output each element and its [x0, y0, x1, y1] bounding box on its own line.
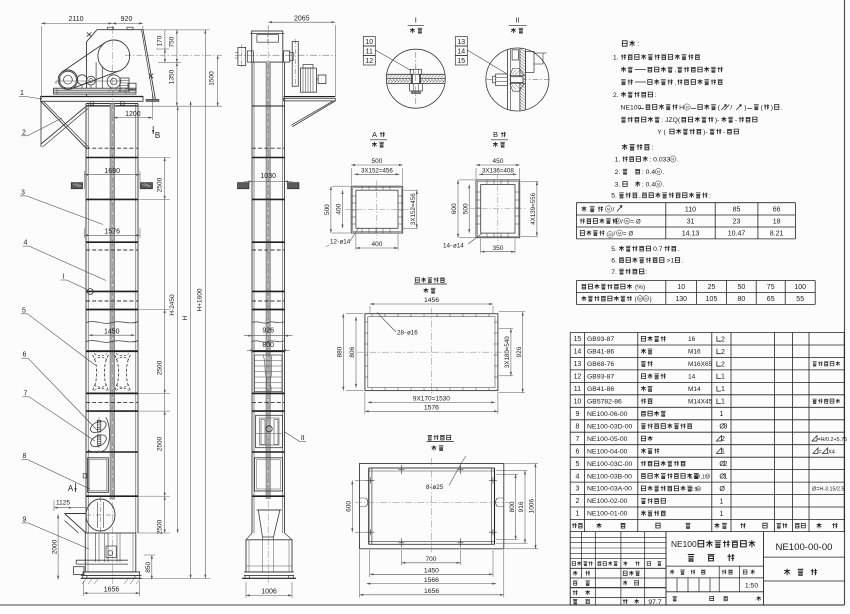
- svg-text:B: B: [155, 131, 160, 140]
- svg-text:,1: ,1: [701, 475, 706, 481]
- svg-text:65: 65: [767, 296, 775, 303]
- svg-text:80: 80: [738, 296, 746, 303]
- svg-text:55: 55: [796, 296, 804, 303]
- svg-text:450: 450: [492, 158, 503, 165]
- svg-text:2500: 2500: [156, 360, 163, 375]
- svg-text:.: .: [678, 246, 680, 253]
- svg-text:2: 2: [721, 436, 725, 443]
- svg-text:.: .: [781, 105, 783, 112]
- svg-text:16: 16: [688, 336, 696, 343]
- svg-text:II: II: [301, 435, 305, 442]
- svg-text:920: 920: [121, 16, 133, 23]
- svg-text:NE100-03D-00: NE100-03D-00: [587, 423, 633, 430]
- svg-text:31: 31: [687, 218, 695, 225]
- svg-text:12: 12: [574, 374, 582, 381]
- svg-text:1.: 1.: [613, 55, 619, 62]
- svg-text:7.: 7.: [611, 269, 617, 276]
- svg-text:5: 5: [575, 461, 579, 468]
- svg-text:M: M: [616, 219, 619, 223]
- svg-text:2000: 2000: [51, 539, 58, 554]
- svg-text:9X170=1530: 9X170=1530: [413, 396, 450, 403]
- svg-text:8-: 8-: [426, 484, 432, 491]
- svg-text:NE100-03C-00: NE100-03C-00: [587, 461, 633, 468]
- svg-text:Ø=H-3.15/2.5: Ø=H-3.15/2.5: [812, 487, 845, 493]
- svg-text:.: .: [677, 157, 679, 164]
- svg-text:800: 800: [509, 501, 516, 512]
- svg-text:1350: 1350: [168, 69, 175, 84]
- svg-text:): ): [650, 296, 652, 303]
- svg-text:50: 50: [738, 284, 746, 291]
- svg-text:926: 926: [516, 346, 523, 357]
- svg-text:1450: 1450: [104, 328, 120, 335]
- svg-text:1: 1: [721, 399, 725, 406]
- svg-text:1125: 1125: [56, 500, 70, 507]
- svg-text:GB5782-86: GB5782-86: [587, 399, 622, 406]
- svg-text:14: 14: [457, 49, 465, 56]
- svg-text:500: 500: [324, 204, 331, 215]
- svg-text:M: M: [696, 475, 699, 479]
- svg-text:1.: 1.: [615, 157, 621, 164]
- svg-text:4: 4: [24, 240, 28, 247]
- svg-text:1576: 1576: [104, 229, 120, 236]
- svg-text:2500: 2500: [156, 177, 163, 192]
- svg-text:14-: 14-: [443, 243, 452, 250]
- svg-text:II: II: [515, 16, 519, 25]
- svg-text:=: =: [623, 232, 627, 238]
- svg-text:1450: 1450: [424, 568, 439, 575]
- svg-text:=: =: [819, 449, 822, 455]
- svg-text:9: 9: [575, 411, 579, 418]
- svg-text:4X139=556: 4X139=556: [530, 192, 537, 224]
- svg-text:1576: 1576: [424, 405, 439, 412]
- svg-text:11: 11: [574, 386, 581, 393]
- svg-text:H: H: [182, 315, 189, 320]
- svg-text:,: ,: [674, 80, 676, 87]
- svg-text:1500: 1500: [209, 71, 216, 86]
- svg-text:10: 10: [365, 39, 373, 46]
- svg-text:Ø: Ø: [629, 232, 634, 238]
- svg-text:M: M: [626, 219, 629, 223]
- svg-text:B: B: [493, 130, 498, 139]
- svg-text:1200: 1200: [125, 111, 141, 118]
- svg-text:M: M: [657, 170, 660, 174]
- svg-text:3: 3: [723, 424, 727, 431]
- svg-text:13: 13: [574, 361, 582, 368]
- svg-text::: :: [637, 41, 639, 48]
- svg-text:2500: 2500: [156, 436, 163, 451]
- svg-text:130: 130: [675, 296, 687, 303]
- svg-text:8: 8: [575, 423, 579, 430]
- svg-text:): ): [744, 105, 746, 112]
- svg-text:5.: 5.: [611, 193, 617, 200]
- svg-text:NE100-05-00: NE100-05-00: [587, 436, 628, 443]
- svg-text:14.13: 14.13: [682, 230, 700, 237]
- svg-text:3X152=456: 3X152=456: [361, 168, 393, 175]
- svg-text:Ø: Ø: [636, 220, 641, 226]
- svg-text:3: 3: [575, 486, 579, 493]
- svg-text:1: 1: [723, 474, 727, 481]
- svg-text:3.: 3.: [615, 182, 621, 189]
- svg-text:I: I: [63, 274, 65, 281]
- svg-text:.: .: [662, 182, 664, 189]
- svg-text:1: 1: [719, 498, 723, 505]
- svg-text:916: 916: [518, 501, 525, 512]
- svg-text:2: 2: [723, 461, 727, 468]
- svg-text:4: 4: [575, 473, 579, 480]
- svg-text:H: H: [679, 105, 684, 112]
- svg-text:100: 100: [794, 284, 806, 291]
- svg-text:750: 750: [168, 36, 175, 47]
- svg-text:=H/0.2+5.75: =H/0.2+5.75: [818, 437, 848, 443]
- svg-text:7: 7: [24, 390, 28, 397]
- svg-text:926: 926: [262, 327, 274, 334]
- svg-text:500: 500: [371, 158, 382, 165]
- svg-text:6.: 6.: [611, 258, 617, 265]
- svg-text:2: 2: [22, 129, 26, 136]
- svg-text:1656: 1656: [104, 586, 120, 593]
- svg-text:NE100-00-00: NE100-00-00: [775, 542, 832, 553]
- svg-text:GB68-76: GB68-76: [587, 361, 614, 368]
- svg-text:>1: >1: [667, 258, 675, 265]
- svg-text:,: ,: [639, 193, 641, 200]
- svg-text:110: 110: [685, 206, 696, 213]
- svg-text:97.7: 97.7: [648, 599, 661, 606]
- svg-text:11: 11: [366, 49, 373, 56]
- svg-text::: :: [646, 269, 648, 276]
- svg-text:12-: 12-: [330, 239, 339, 246]
- svg-text:6: 6: [23, 352, 27, 359]
- svg-text:Y (: Y (: [657, 129, 666, 136]
- svg-text:2: 2: [721, 349, 725, 356]
- svg-text:13: 13: [457, 39, 465, 46]
- svg-text:M: M: [657, 182, 660, 186]
- svg-text:2: 2: [721, 336, 725, 343]
- svg-text:1: 1: [721, 374, 725, 381]
- svg-text:ø14: ø14: [340, 239, 351, 246]
- svg-text:1456: 1456: [424, 297, 439, 304]
- svg-text:M: M: [618, 231, 621, 235]
- svg-text:700: 700: [425, 556, 436, 563]
- svg-text:5: 5: [22, 307, 26, 314]
- svg-text:GB41-86: GB41-86: [587, 349, 614, 356]
- svg-text:.: .: [662, 169, 664, 176]
- svg-text:/: /: [613, 207, 615, 214]
- svg-text:(%): (%): [635, 284, 645, 291]
- svg-text:2065: 2065: [294, 15, 310, 22]
- svg-text:H+1600: H+1600: [197, 288, 204, 311]
- svg-text:400: 400: [336, 203, 343, 214]
- svg-text:10: 10: [677, 284, 685, 291]
- svg-text:1006: 1006: [261, 589, 277, 596]
- svg-text:M: M: [645, 297, 648, 301]
- svg-text:850: 850: [145, 561, 152, 572]
- svg-text:GB41-86: GB41-86: [587, 386, 614, 393]
- svg-text:1: 1: [575, 511, 579, 518]
- svg-text:NE100-02-00: NE100-02-00: [587, 498, 628, 505]
- svg-text:18: 18: [773, 218, 781, 225]
- svg-text:3X152=456: 3X152=456: [410, 193, 417, 225]
- svg-text:ø25: ø25: [433, 484, 444, 491]
- svg-text:85: 85: [733, 206, 741, 213]
- svg-text::: :: [652, 145, 654, 152]
- svg-text:400: 400: [371, 241, 382, 248]
- svg-text:5.: 5.: [611, 246, 617, 253]
- svg-text:2: 2: [575, 498, 579, 505]
- svg-text:2110: 2110: [68, 16, 83, 23]
- svg-text:NE100: NE100: [671, 539, 697, 549]
- svg-text:A: A: [372, 130, 377, 139]
- svg-text:3: 3: [21, 189, 25, 196]
- svg-text:8.21: 8.21: [770, 230, 784, 237]
- svg-text:M: M: [639, 297, 642, 301]
- svg-text:M: M: [706, 475, 709, 479]
- svg-text:600: 600: [346, 501, 353, 512]
- svg-text:ø14: ø14: [453, 243, 464, 250]
- svg-text:)-: )-: [715, 117, 720, 124]
- svg-text::: :: [709, 193, 711, 200]
- svg-text:NE100-01-00: NE100-01-00: [587, 511, 628, 518]
- svg-text:NE100-06-00: NE100-06-00: [587, 411, 628, 418]
- svg-text:1030: 1030: [260, 173, 276, 180]
- svg-text:,: ,: [674, 67, 676, 74]
- svg-text:M16: M16: [688, 349, 701, 356]
- svg-text:/: /: [730, 105, 732, 112]
- svg-text:.: .: [682, 258, 684, 265]
- svg-text:GB93-87: GB93-87: [587, 336, 614, 343]
- svg-text:ø16: ø16: [407, 330, 418, 337]
- svg-text:: 0.033: : 0.033: [649, 157, 670, 164]
- svg-text:6: 6: [575, 448, 579, 455]
- svg-text:170: 170: [157, 35, 164, 46]
- svg-text:2: 2: [721, 361, 725, 368]
- svg-text:105: 105: [706, 296, 718, 303]
- svg-text:2500: 2500: [156, 519, 163, 534]
- svg-text:10: 10: [574, 399, 582, 406]
- svg-text:GB93-87: GB93-87: [587, 374, 614, 381]
- svg-text:M16X65: M16X65: [688, 361, 713, 368]
- svg-text:15: 15: [457, 58, 465, 65]
- svg-text:: 0.4: : 0.4: [642, 169, 655, 176]
- svg-text:1: 1: [721, 449, 725, 456]
- svg-text:X4: X4: [828, 449, 835, 455]
- svg-text:28-: 28-: [397, 330, 406, 337]
- svg-text:M14X45: M14X45: [688, 399, 713, 406]
- svg-text:23: 23: [733, 218, 741, 225]
- svg-text:M: M: [609, 233, 612, 237]
- svg-text:75: 75: [767, 284, 775, 291]
- svg-text:1: 1: [721, 386, 725, 393]
- svg-text::: :: [655, 92, 657, 99]
- svg-text:880: 880: [337, 346, 344, 357]
- svg-text:NE100-04-00: NE100-04-00: [587, 448, 628, 455]
- svg-text:M: M: [686, 105, 689, 109]
- svg-text:500: 500: [462, 203, 469, 214]
- svg-text:3X136=408: 3X136=408: [482, 168, 514, 175]
- svg-text:/: /: [614, 231, 616, 238]
- svg-text:2.: 2.: [613, 92, 619, 99]
- svg-text:15: 15: [574, 336, 582, 343]
- svg-text:0.7: 0.7: [653, 246, 663, 253]
- svg-text:1: 1: [719, 411, 723, 418]
- svg-text:7: 7: [575, 436, 579, 443]
- svg-text:I: I: [415, 16, 417, 25]
- svg-text:M: M: [607, 207, 610, 211]
- svg-text:): ): [771, 105, 773, 112]
- svg-text:3X180=540: 3X180=540: [504, 336, 511, 368]
- svg-text:350: 350: [492, 245, 503, 252]
- svg-text:800: 800: [262, 342, 274, 349]
- svg-text:14: 14: [574, 349, 582, 356]
- svg-text:10.47: 10.47: [728, 230, 746, 237]
- svg-text:1: 1: [20, 90, 24, 97]
- svg-text:Ø: Ø: [719, 484, 725, 493]
- svg-text:NE100-03B-00: NE100-03B-00: [587, 473, 632, 480]
- svg-text:1:50: 1:50: [745, 583, 758, 590]
- svg-text:)-: )-: [703, 129, 708, 136]
- svg-text:H-2450: H-2450: [169, 294, 176, 316]
- svg-text:8: 8: [23, 453, 27, 460]
- svg-text:: 0.4: : 0.4: [642, 182, 655, 189]
- svg-text:A: A: [68, 484, 74, 493]
- svg-text:600: 600: [451, 203, 458, 214]
- svg-text:9: 9: [23, 516, 27, 523]
- svg-text:1006: 1006: [529, 498, 536, 513]
- svg-text:1: 1: [719, 511, 723, 518]
- svg-text:/: /: [621, 219, 623, 226]
- svg-text:1566: 1566: [424, 577, 439, 584]
- svg-text:806: 806: [349, 346, 356, 357]
- svg-text:M: M: [697, 487, 700, 491]
- svg-text:14: 14: [688, 374, 696, 381]
- svg-text:12: 12: [365, 58, 373, 65]
- svg-text:NE100-03A-00: NE100-03A-00: [587, 486, 632, 493]
- svg-text:1656: 1656: [424, 588, 439, 595]
- svg-text:66: 66: [773, 206, 781, 213]
- svg-text:M: M: [671, 157, 674, 161]
- svg-text:NE100: NE100: [621, 105, 642, 112]
- svg-text:2.: 2.: [615, 169, 621, 176]
- svg-text:=: =: [631, 220, 635, 226]
- svg-text:1680: 1680: [104, 168, 120, 175]
- svg-text:25: 25: [708, 284, 716, 291]
- svg-text:M14: M14: [688, 386, 701, 393]
- svg-text:-: -: [735, 117, 737, 124]
- svg-text:: JZQ(: : JZQ(: [661, 117, 681, 124]
- svg-text:-: -: [723, 129, 725, 136]
